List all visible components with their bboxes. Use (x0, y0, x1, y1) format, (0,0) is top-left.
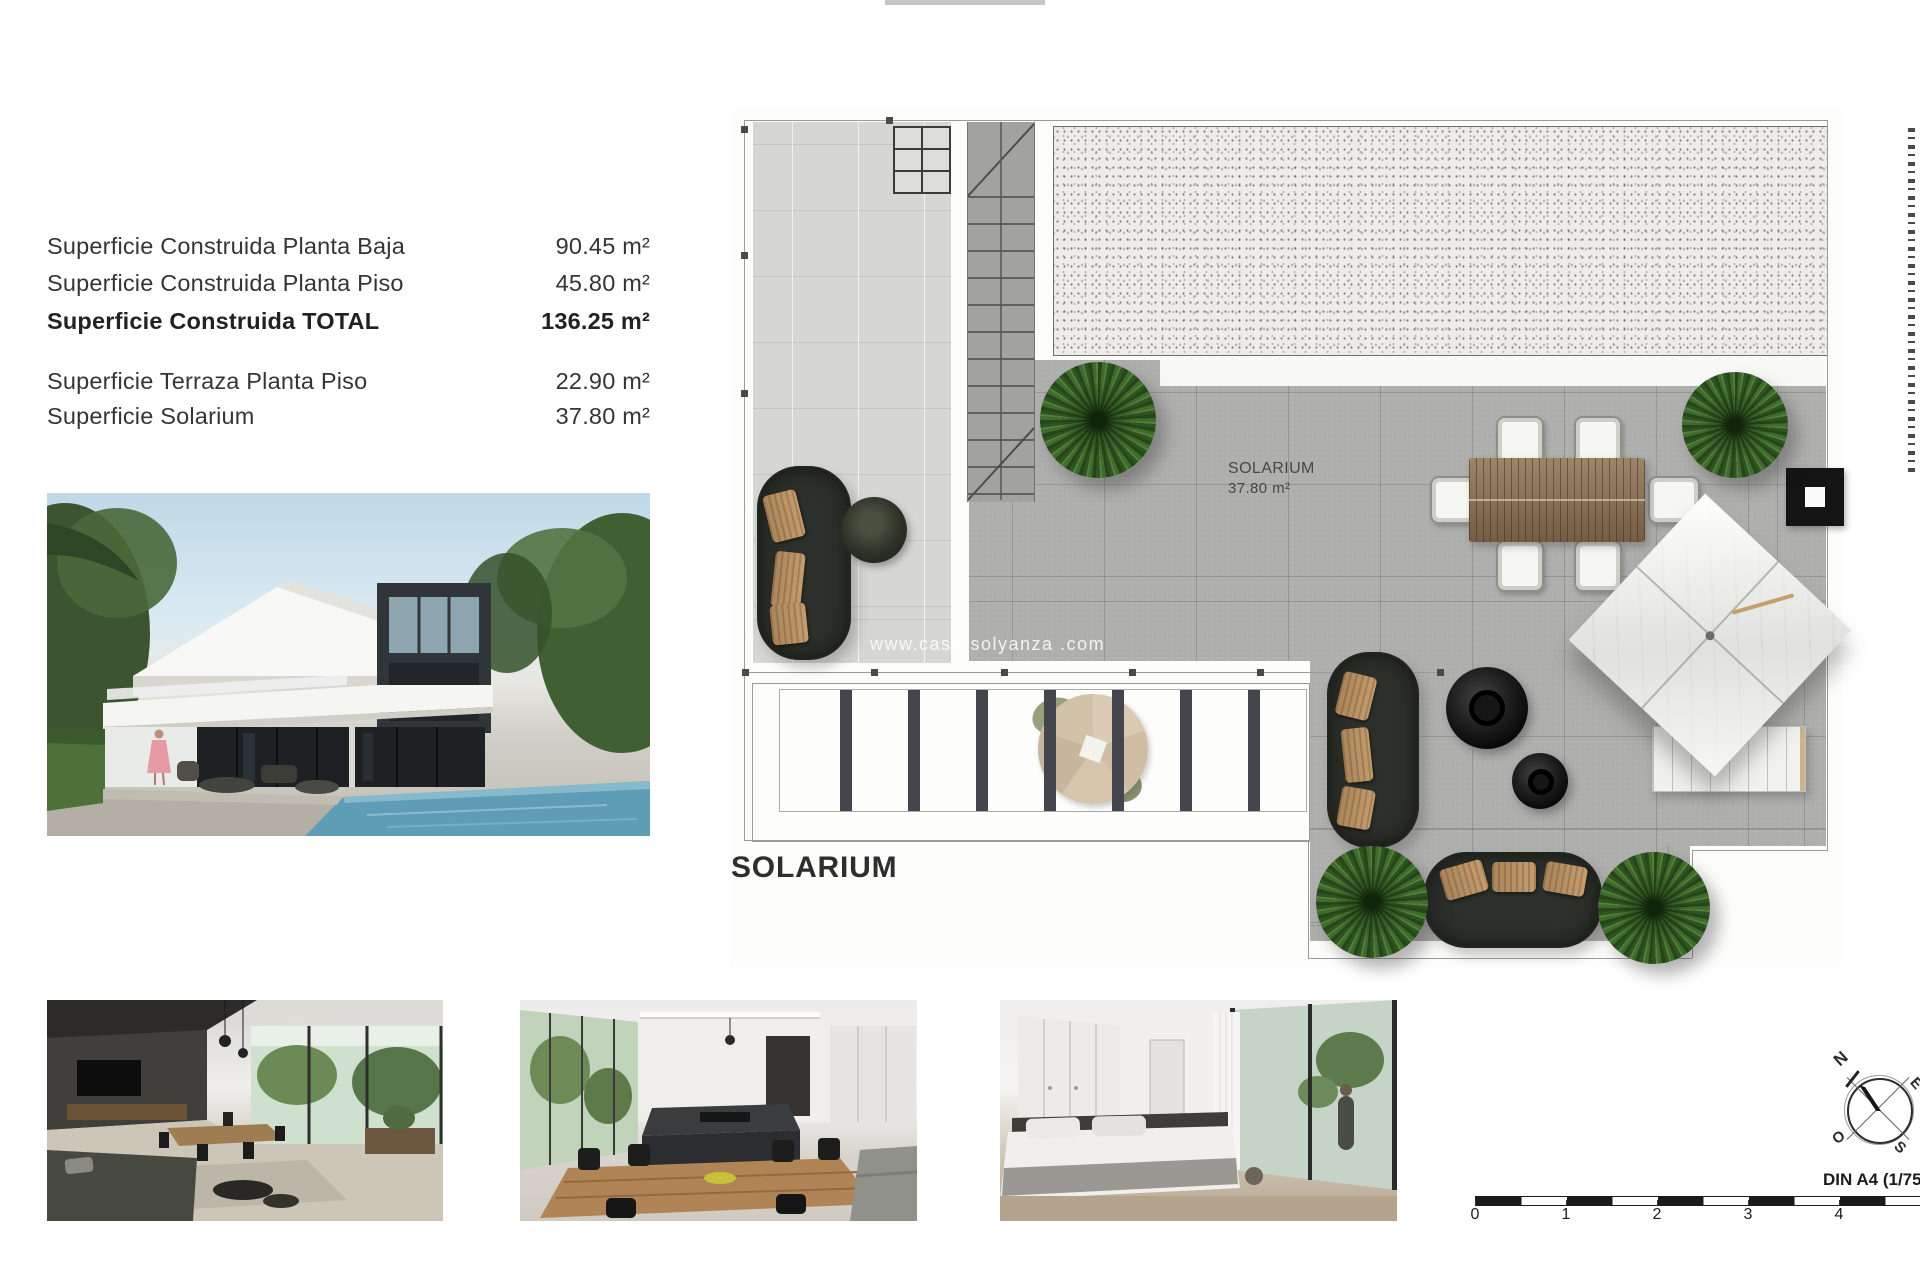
dimension-tick (1001, 669, 1008, 676)
section-title: SOLARIUM (731, 851, 897, 885)
plant (1316, 846, 1428, 958)
scale-number: 0 (1471, 1206, 1480, 1224)
dimension-tick (1437, 669, 1444, 676)
outdoor-sofa (757, 466, 851, 660)
cushion (1334, 671, 1378, 722)
spec-label: Superficie Terraza Planta Piso (47, 368, 367, 398)
clipped-vertical-text (1908, 128, 1915, 473)
boundary-line (744, 120, 1828, 121)
dining-table (1469, 458, 1645, 542)
round-side-table (841, 497, 907, 563)
spec-value: 45.80 m² (556, 270, 650, 300)
spec-label: Superficie Construida Planta Baja (47, 233, 405, 263)
scale-number: 2 (1653, 1206, 1662, 1224)
dimension-tick (741, 252, 748, 259)
cushion (762, 489, 807, 544)
dining-chair (1496, 540, 1544, 592)
plant (1040, 362, 1156, 478)
round-pouf (1446, 667, 1528, 749)
scale-caption: DIN A4 (1/75 (1823, 1170, 1920, 1190)
dimension-tick (1257, 669, 1264, 676)
villa-exterior-photo (47, 493, 650, 836)
spec-value: 90.45 m² (556, 233, 650, 263)
plant (1598, 852, 1710, 964)
dimension-tick (741, 390, 748, 397)
dimension-tick (741, 126, 748, 133)
compass-north-label: N (1830, 1047, 1853, 1070)
room-label: SOLARIUM 37.80 m² (1228, 460, 1315, 497)
kitchen-photo (520, 1000, 917, 1221)
room-area: 37.80 m² (1228, 480, 1315, 497)
dimension-tick (742, 669, 749, 676)
outdoor-sofa (1327, 652, 1419, 848)
spec-row: Superficie Construida Planta Baja 90.45 … (47, 233, 650, 263)
scale-number: 1 (1562, 1206, 1571, 1224)
room-name: SOLARIUM (1228, 460, 1315, 478)
bbq-grill (1786, 468, 1844, 526)
spec-row: Superficie Solarium 37.80 m² (47, 403, 650, 433)
plant (1682, 372, 1788, 478)
boundary-line (1308, 840, 1309, 958)
staircase (967, 122, 1035, 502)
bbq-grill-center (1805, 487, 1825, 507)
scale-number: 4 (1835, 1206, 1844, 1224)
gravel-roof-area (1053, 126, 1828, 356)
cushion (1492, 862, 1536, 892)
boundary-line (744, 120, 745, 840)
spec-label: Superficie Construida Planta Piso (47, 270, 404, 300)
lounger-frame (1800, 727, 1805, 791)
brochure-page: Superficie Construida Planta Baja 90.45 … (0, 0, 1920, 1280)
dining-chair (1574, 540, 1622, 592)
pouf-center (1469, 690, 1505, 726)
scale-bar: DIN A4 (1/75 0 1 2 3 4 (1473, 1170, 1920, 1250)
boundary-line (1692, 850, 1828, 851)
table-seam (1469, 499, 1645, 501)
compass-icon: N E S O (1833, 1045, 1920, 1163)
pouf-center (1528, 769, 1554, 795)
kitchen-illustration (520, 1000, 917, 1221)
skylight-grid (893, 126, 951, 194)
dimension-tick (886, 117, 893, 124)
stair-detail (968, 122, 1034, 502)
dimension-tick (1129, 669, 1136, 676)
cushion (1336, 785, 1376, 830)
scale-number: 3 (1744, 1206, 1753, 1224)
bedroom-illustration (1000, 1000, 1397, 1221)
cushion (770, 551, 806, 610)
villa-exterior-illustration (47, 493, 650, 836)
spec-label: Superficie Construida TOTAL (47, 308, 379, 338)
spec-label: Superficie Solarium (47, 403, 255, 433)
spec-row-total: Superficie Construida TOTAL 136.25 m² (47, 308, 650, 338)
pergola-slat-area (779, 689, 1307, 812)
scale-segments (1475, 1196, 1920, 1206)
outdoor-sofa (1424, 852, 1602, 948)
cushion (769, 602, 809, 646)
top-edge-strip (885, 0, 1045, 5)
cushion (1542, 861, 1589, 898)
spec-value: 22.90 m² (556, 368, 650, 398)
spec-value: 136.25 m² (541, 308, 650, 338)
pergola-slats (780, 690, 1306, 811)
living-room-photo (47, 1000, 443, 1221)
spec-row: Superficie Construida Planta Piso 45.80 … (47, 270, 650, 300)
compass-west-label: O (1829, 1127, 1848, 1148)
bedroom-photo (1000, 1000, 1397, 1221)
watermark: www.casa-solyanza .com (870, 634, 1105, 655)
spec-row: Superficie Terraza Planta Piso 22.90 m² (47, 368, 650, 398)
solarium-floor-plan: SOLARIUM 37.80 m² www.casa-solyanza .com (731, 108, 1843, 967)
living-room-illustration (47, 1000, 443, 1221)
cushion (1340, 727, 1373, 784)
dimension-tick (871, 669, 878, 676)
cushion (1438, 859, 1489, 902)
spec-value: 37.80 m² (556, 403, 650, 433)
round-pouf (1512, 753, 1568, 809)
